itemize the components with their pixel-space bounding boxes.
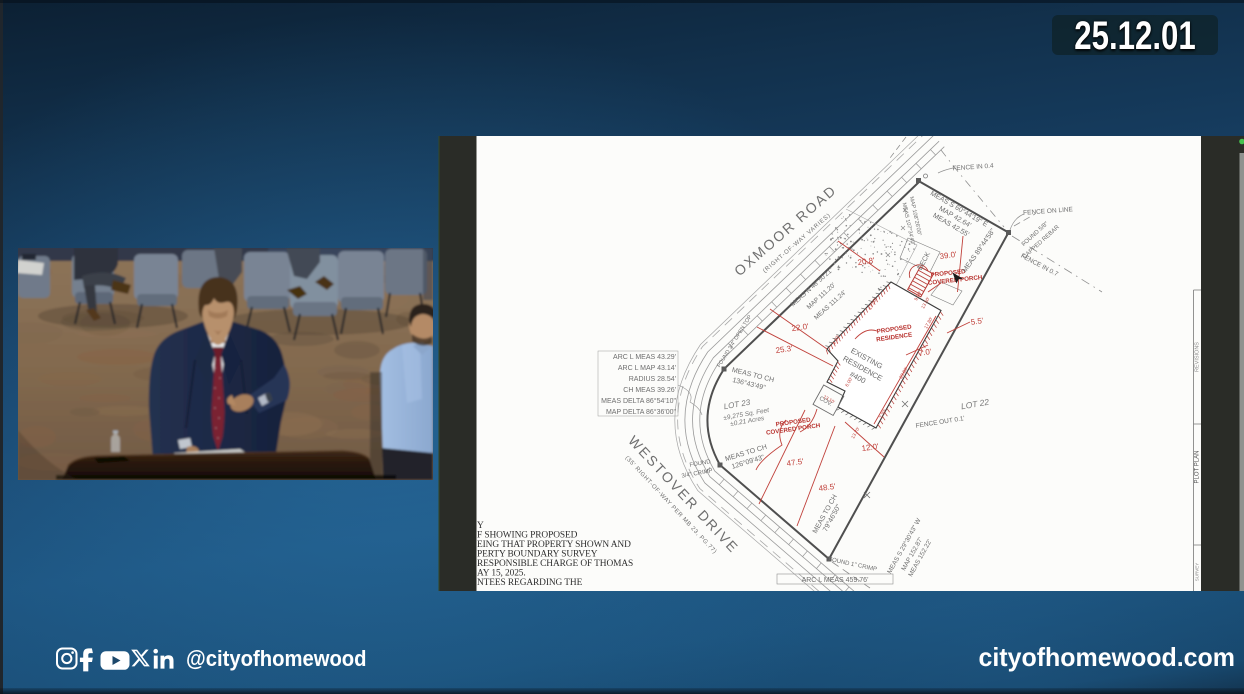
svg-text:SURVEY: SURVEY: [1195, 563, 1200, 581]
svg-text:F SHOWING PROPOSED: F SHOWING PROPOSED: [477, 531, 578, 541]
svg-text:Y: Y: [477, 521, 484, 531]
svg-text:ARC L MAP 43.14': ARC L MAP 43.14': [618, 365, 676, 372]
svg-text:NTEES REGARDING THE: NTEES REGARDING THE: [477, 578, 583, 588]
svg-text:CH MEAS 39.26': CH MEAS 39.26': [623, 387, 676, 394]
svg-text:7.0': 7.0': [918, 347, 932, 358]
svg-text:MAP DELTA 86°36'00": MAP DELTA 86°36'00": [606, 408, 677, 416]
svg-text:MEAS DELTA 86°54'10": MEAS DELTA 86°54'10": [601, 397, 676, 405]
svg-text:RADIUS 28.54': RADIUS 28.54': [629, 376, 676, 383]
svg-text:REVISIONS: REVISIONS: [1195, 342, 1201, 372]
svg-text:AY 15, 2025.: AY 15, 2025.: [477, 569, 526, 579]
svg-text:RESPONSIBLE CHARGE OF THOMAS: RESPONSIBLE CHARGE OF THOMAS: [477, 559, 633, 569]
svg-text:ARC L MEAS 43.29': ARC L MEAS 43.29': [613, 354, 676, 361]
svg-text:PLOT PLAN: PLOT PLAN: [1195, 451, 1201, 484]
svg-text:ARC L MEAS 459.76': ARC L MEAS 459.76': [802, 577, 869, 584]
svg-text:PERTY BOUNDARY SURVEY: PERTY BOUNDARY SURVEY: [477, 550, 598, 560]
svg-text:EING THAT PROPERTY SHOWN AND: EING THAT PROPERTY SHOWN AND: [477, 540, 631, 550]
svg-text:5.5': 5.5': [970, 316, 984, 327]
